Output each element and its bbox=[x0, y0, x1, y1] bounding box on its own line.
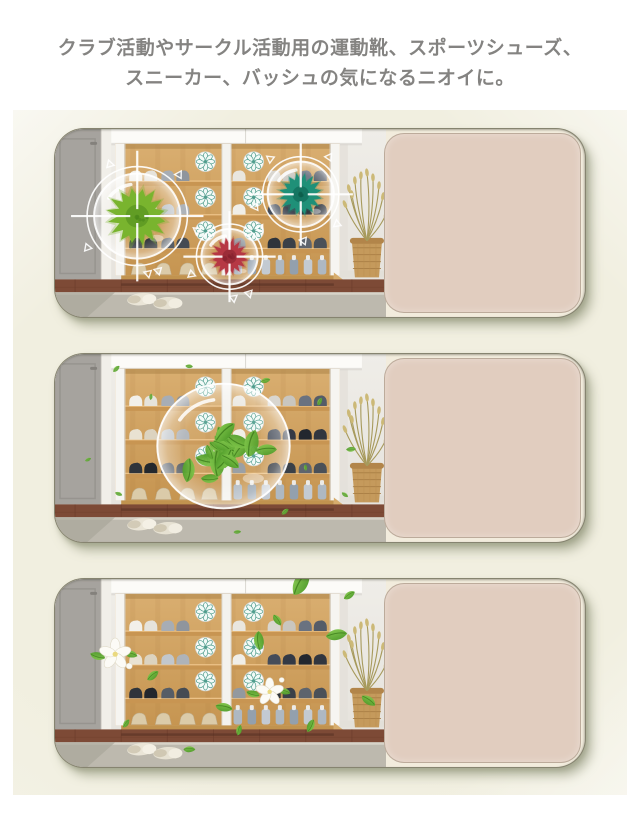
shoe-cabinet-with-green-leaf-bubble bbox=[55, 354, 386, 542]
shoe-cabinet-fresh-with-leaves-and-flowers bbox=[55, 579, 386, 767]
panels-section bbox=[13, 110, 627, 795]
deodorizer-disc-icon bbox=[195, 637, 215, 657]
deodorizer-disc-icon bbox=[244, 602, 264, 622]
blank-beige-panel bbox=[384, 358, 581, 538]
deodorizer-disc-icon bbox=[244, 187, 264, 207]
entry-door bbox=[55, 354, 111, 504]
deodorizer-disc-icon bbox=[195, 602, 215, 622]
scene-card-odor-germs bbox=[54, 128, 586, 318]
entryway-scene bbox=[55, 129, 386, 317]
deodorizer-disc-icon bbox=[244, 152, 264, 172]
wicker-basket bbox=[350, 238, 384, 278]
scene-card-deodorizing-action bbox=[54, 353, 586, 543]
blank-beige-panel bbox=[384, 583, 581, 763]
upper-cabinet bbox=[111, 354, 362, 370]
rug bbox=[55, 742, 386, 767]
wicker-basket bbox=[350, 463, 384, 503]
heading-line-1: クラブ活動やサークル活動用の運動靴、スポーツシューズ、 bbox=[0, 34, 640, 64]
rug bbox=[55, 292, 386, 317]
rug bbox=[55, 517, 386, 542]
deodorizer-disc-icon bbox=[195, 152, 215, 172]
deodorizer-disc-icon bbox=[195, 671, 215, 691]
entryway-scene bbox=[55, 354, 386, 542]
upper-cabinet bbox=[111, 579, 362, 595]
page-title: クラブ活動やサークル活動用の運動靴、スポーツシューズ、 スニーカー、バッシュの気… bbox=[0, 0, 640, 94]
blank-beige-panel bbox=[384, 133, 581, 313]
shoe-cabinet bbox=[115, 594, 348, 734]
deodorizer-disc-icon bbox=[195, 187, 215, 207]
shoe-cabinet-with-odor-germs-targeted bbox=[55, 129, 386, 317]
entryway-scene bbox=[55, 579, 386, 767]
scene-card-fresh-result bbox=[54, 578, 586, 768]
heading-line-2: スニーカー、バッシュの気になるニオイに。 bbox=[0, 64, 640, 94]
page-root: クラブ活動やサークル活動用の運動靴、スポーツシューズ、 スニーカー、バッシュの気… bbox=[0, 0, 640, 795]
wicker-basket bbox=[350, 688, 384, 728]
upper-cabinet bbox=[111, 129, 362, 145]
